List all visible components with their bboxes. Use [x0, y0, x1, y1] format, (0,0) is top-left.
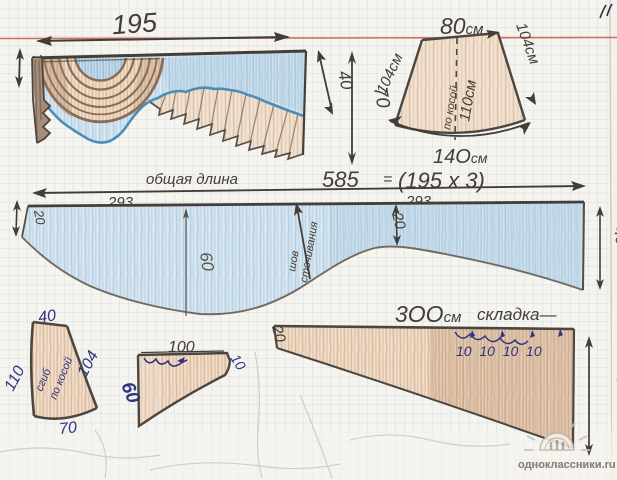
svg-text:195: 195: [111, 7, 159, 40]
svg-text:60: 60: [196, 251, 218, 273]
svg-text:складка—: складка—: [477, 305, 557, 324]
svg-text:=: =: [383, 171, 392, 188]
svg-text:40: 40: [37, 307, 57, 326]
svg-text:70: 70: [58, 419, 78, 438]
svg-text:10 10 10 10: 10 10 10 10: [456, 343, 542, 359]
svg-text:100: 100: [168, 339, 195, 356]
svg-text:одноклассники.ru: одноклассники.ru: [518, 459, 616, 471]
svg-text:14Oсм: 14Oсм: [433, 146, 488, 168]
svg-text:общая длина: общая длина: [146, 171, 238, 188]
svg-text:(195 x 3): (195 x 3): [398, 168, 485, 193]
